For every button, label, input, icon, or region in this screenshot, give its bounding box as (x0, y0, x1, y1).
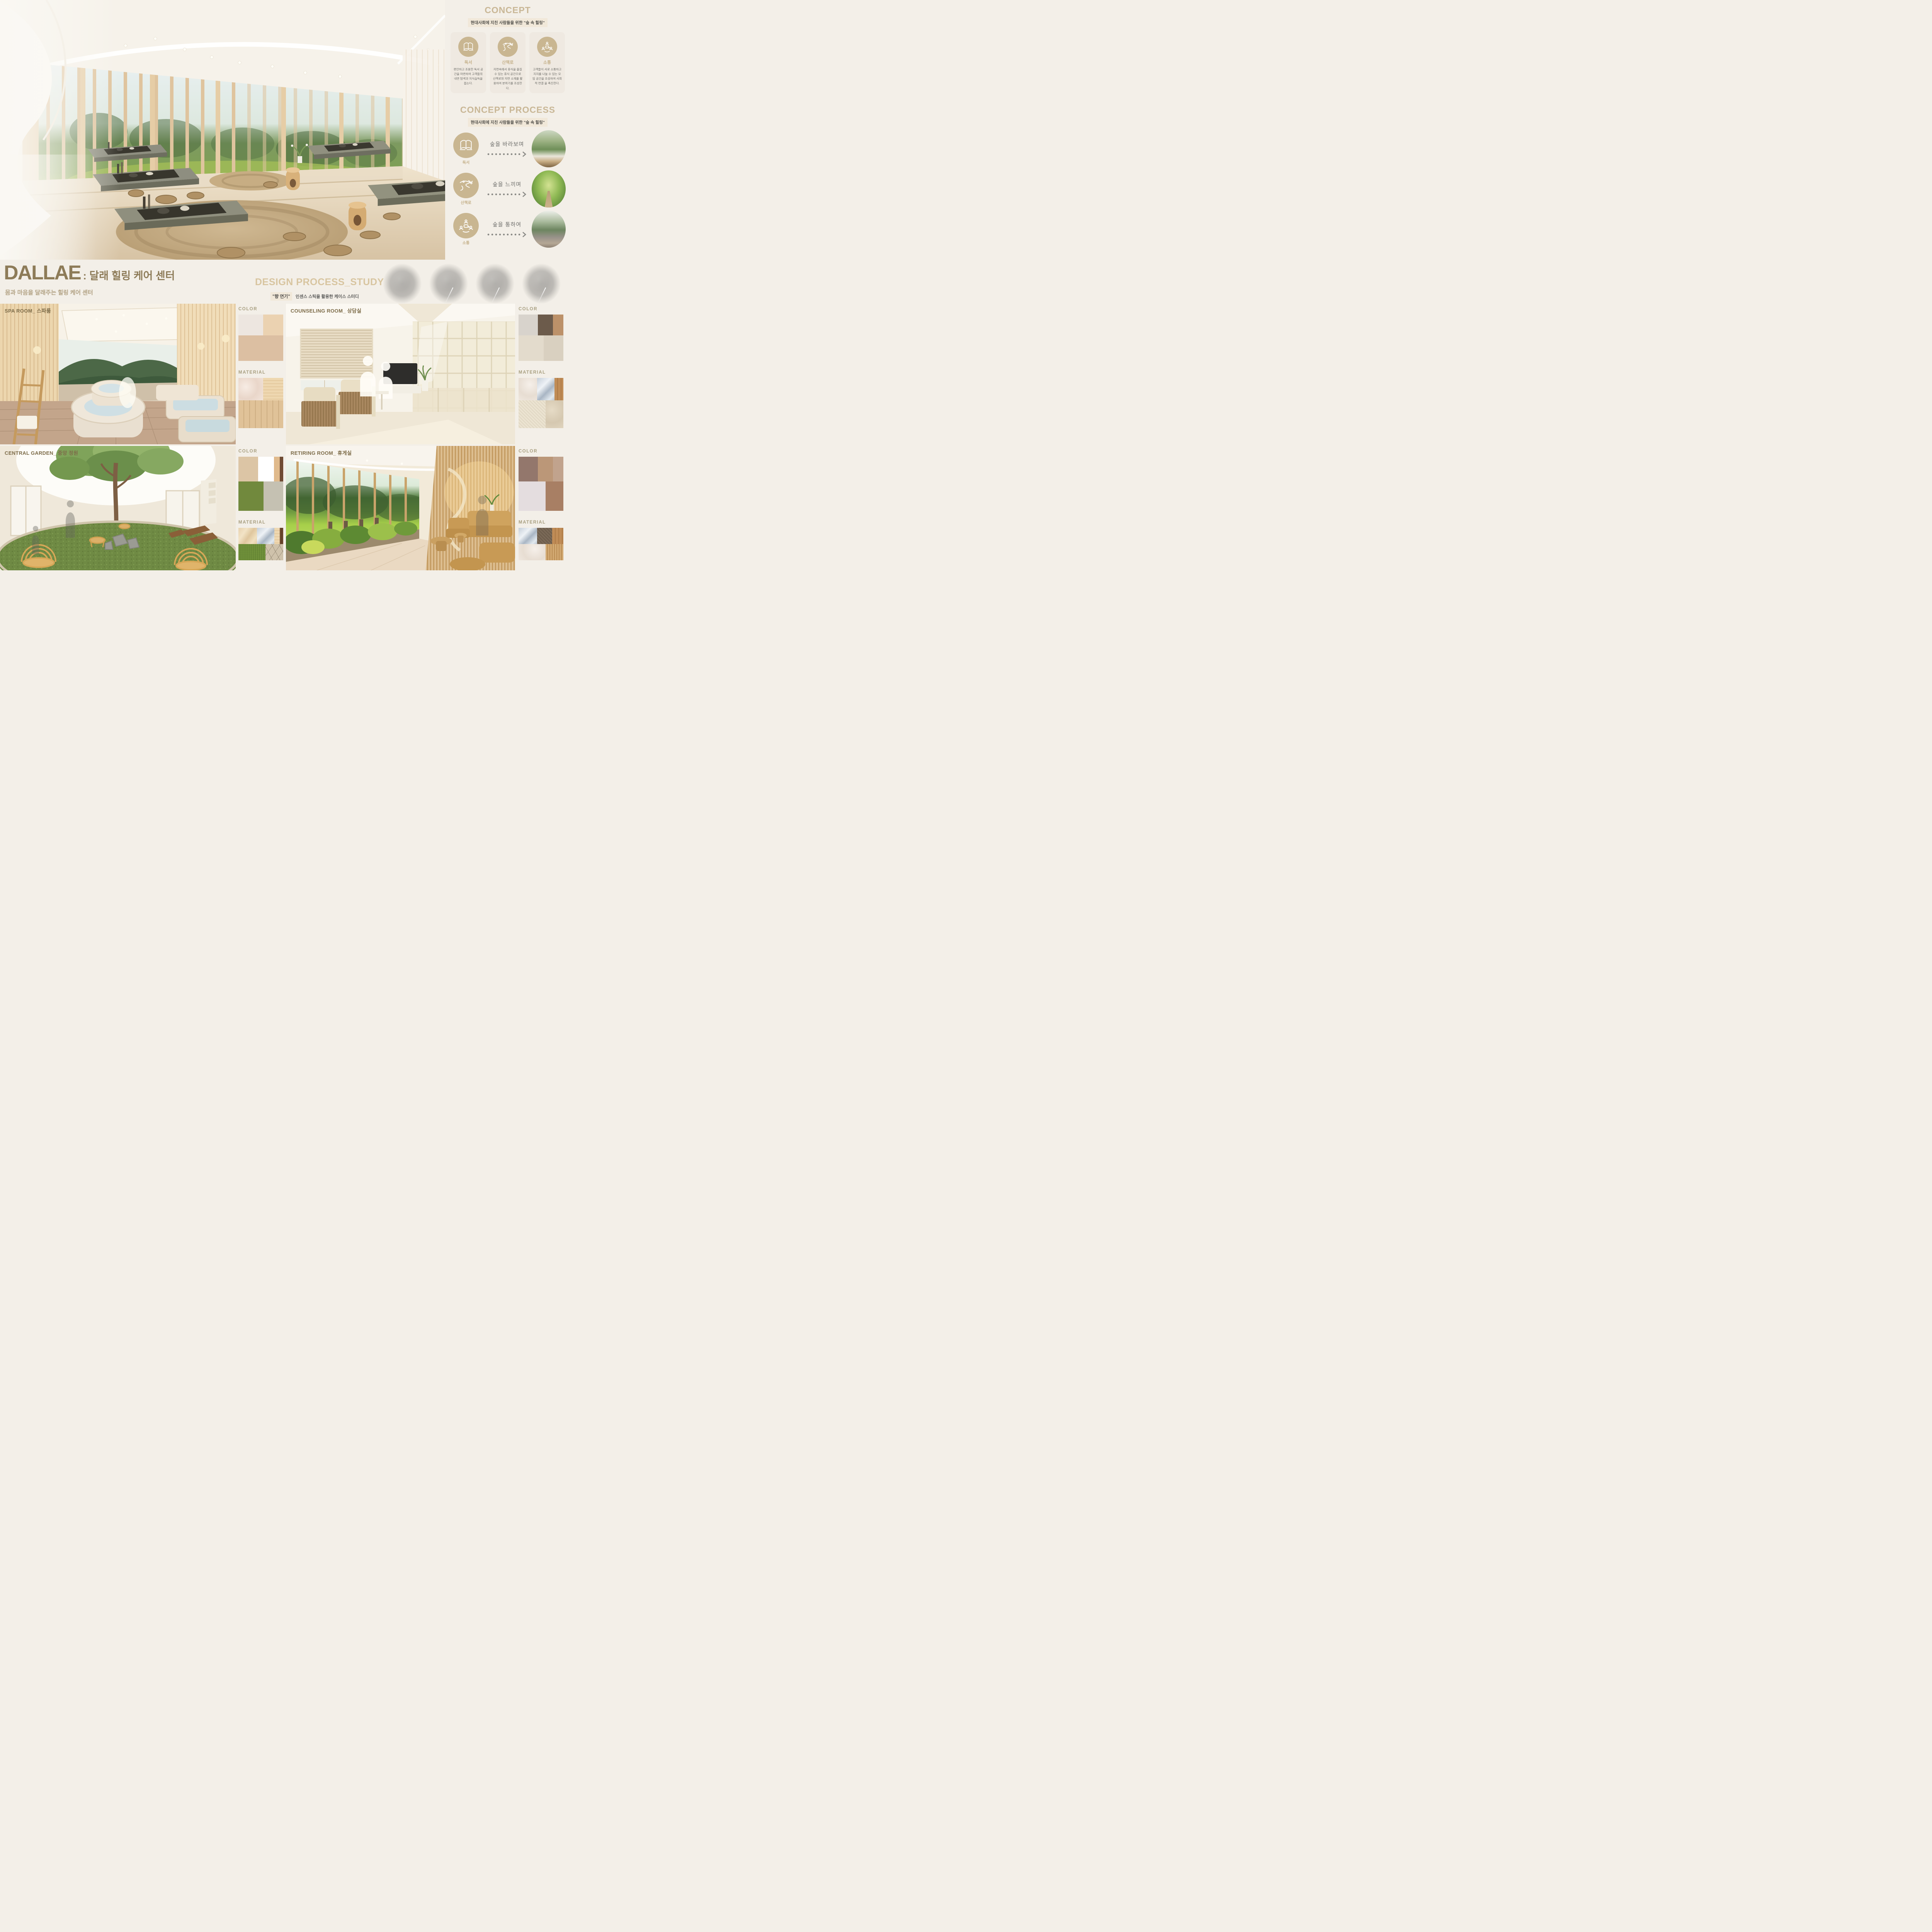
retiring-palette: COLOR MATERIAL (519, 446, 563, 560)
counseling-material-swatches (519, 378, 563, 428)
process-row-reading: 독서 숲을 바라보며 (445, 131, 570, 167)
material-heading: MATERIAL (238, 520, 283, 525)
process-text: 숲을 바라보며 (490, 140, 524, 148)
color-heading: COLOR (238, 449, 283, 454)
material-swatch-wood-maple (263, 378, 283, 400)
concept-card-label: 소통 (543, 59, 551, 65)
concept-subtitle: 현대사회에 지친 사람들을 위한 "숲 속 힐링" (468, 18, 548, 27)
communication-icon (453, 213, 479, 238)
color-swatch (544, 335, 563, 361)
color-swatch (519, 315, 538, 335)
process-photo-forest-path (532, 170, 566, 207)
retiring-material-swatches (519, 528, 563, 560)
design-process-title: DESIGN PROCESS_STUDY (255, 277, 384, 288)
main-render-tea-lounge (0, 0, 445, 260)
garden-material-swatches (238, 528, 283, 560)
garden-palette: COLOR MATERIAL (238, 446, 283, 560)
dotted-arrow-icon (487, 191, 527, 197)
process-photo-forest-window-study (532, 130, 566, 167)
concept-card-desc: 고객들이 서로 소통하고 지지를 나눌 수 있는 모임 공간을 조성하여 사회적… (529, 67, 565, 86)
dotted-arrow-icon (487, 151, 527, 157)
spa-material-swatches (238, 378, 283, 428)
central-garden-photo (0, 446, 236, 570)
spa-color-swatches (238, 315, 283, 361)
material-swatch-marble-light (519, 544, 546, 560)
counseling-color-swatches (519, 315, 563, 361)
process-text: 숲을 통하여 (493, 221, 521, 228)
project-title: DALLAE : 달래 힐링 케어 센터 (4, 261, 175, 284)
process-label: 소통 (463, 240, 469, 245)
project-subtitle: 몸과 마음을 달래주는 힐링 케어 센터 (5, 288, 93, 296)
material-swatch-wood-oak (552, 528, 563, 544)
color-heading: COLOR (519, 449, 563, 454)
title-band: DALLAE : 달래 힐링 케어 센터 몸과 마음을 달래주는 힐링 케어 센… (0, 260, 570, 304)
color-swatch (553, 315, 563, 335)
concept-card-trail: 산책로 자연속에서 휴식을 즐길수 있는 휴식 공간으로 산책로와 자연 소재를… (490, 32, 526, 93)
retiring-room-photo (286, 446, 515, 570)
material-swatch-wood-dark (280, 528, 283, 544)
material-swatch-marble-beige (238, 528, 257, 544)
material-swatch-metal (519, 528, 537, 544)
communication-icon (537, 37, 557, 57)
concept-card-label: 산책로 (502, 59, 514, 65)
color-swatch (519, 335, 544, 361)
design-process-desc: 인센스 스틱을 활용한 케이스 스터디 (296, 293, 359, 299)
color-swatch (519, 481, 546, 511)
towel (17, 416, 37, 429)
color-swatch (238, 481, 264, 511)
color-swatch (538, 457, 553, 481)
counseling-palette: COLOR MATERIAL (519, 304, 563, 428)
material-heading: MATERIAL (519, 520, 563, 525)
incense-smoke-study-photo (522, 264, 561, 304)
dotted-arrow-icon (487, 231, 527, 238)
concept-title: CONCEPT (445, 0, 570, 15)
counseling-room-photo (286, 304, 515, 444)
material-swatch-metal (257, 528, 274, 544)
concept-card-reading: 독서 편안하고 조용한 독서 공간을 마련하여 고객들의 내면 탐색과 지식습득… (451, 32, 486, 93)
material-swatch-wood-maple (274, 528, 280, 544)
color-swatch (280, 457, 283, 481)
project-title-kr: : 달래 힐링 케어 센터 (83, 267, 175, 282)
tea-lounge-photo (0, 0, 445, 260)
material-swatch-grass (238, 544, 265, 560)
process-row-trail: 산책로 숲을 느끼며 (445, 171, 570, 207)
color-swatch (238, 315, 263, 335)
material-swatch-stone-beige (546, 400, 563, 428)
color-swatch (553, 457, 563, 481)
book-icon (453, 133, 479, 158)
color-swatch (274, 457, 280, 481)
material-swatch-fabric-cream (519, 400, 546, 428)
material-swatch-wood-plank (238, 400, 283, 428)
incense-smoke-study-photo (383, 264, 422, 304)
process-photo-glass-forest-lounge (532, 211, 566, 248)
color-swatch (519, 457, 538, 481)
color-swatch (263, 315, 283, 335)
material-swatch-marble-light (519, 378, 537, 400)
color-heading: COLOR (519, 307, 563, 311)
incense-smoke-tag: "향 연기" (270, 292, 292, 301)
armchair (301, 387, 340, 429)
material-swatch-metal (537, 378, 554, 400)
incense-smoke-study-photo (476, 264, 514, 304)
book-icon (458, 37, 478, 57)
window-blinds (301, 329, 372, 378)
concept-card-desc: 편안하고 조용한 독서 공간을 마련하여 고객들의 내면 탐색과 지식습득을 돕… (451, 67, 486, 86)
concept-card-desc: 자연속에서 휴식을 즐길수 있는 휴식 공간으로 산책로와 자연 소재를 활용하… (490, 67, 526, 91)
concept-panel: CONCEPT 현대사회에 지친 사람들을 위한 "숲 속 힐링" 독서 편안하… (445, 0, 570, 260)
retiring-room-section: RETIRING ROOM_ 휴게실 (286, 446, 515, 570)
garden-color-swatches (238, 457, 283, 511)
color-swatch (264, 481, 283, 511)
process-label: 산책로 (461, 199, 471, 205)
color-swatch (258, 457, 274, 481)
spa-palette: COLOR MATERIAL (238, 304, 283, 428)
concept-section: CONCEPT 현대사회에 지친 사람들을 위한 "숲 속 힐링" 독서 편안하… (445, 0, 570, 93)
spa-room-photo (0, 304, 236, 444)
material-swatch-marble-pink (238, 378, 263, 400)
material-swatch-fabric-brown (537, 528, 552, 544)
retiring-color-swatches (519, 457, 563, 511)
color-swatch (238, 335, 283, 361)
process-row-communication: 소통 숲을 통하여 (445, 211, 570, 247)
concept-process-title: CONCEPT PROCESS (445, 105, 570, 115)
material-heading: MATERIAL (519, 370, 563, 375)
design-process-subtitle: "향 연기" 인센스 스틱을 활용한 케이스 스터디 (270, 292, 359, 301)
color-heading: COLOR (238, 307, 283, 311)
concept-process-section: CONCEPT PROCESS 현대사회에 지친 사람들을 위한 "숲 속 힐링… (445, 105, 570, 247)
material-swatch-wood-slat (546, 544, 563, 560)
material-heading: MATERIAL (238, 370, 283, 375)
concept-card-communication: 소통 고객들이 서로 소통하고 지지를 나눌 수 있는 모임 공간을 조성하여 … (529, 32, 565, 93)
room-label-retiring: RETIRING ROOM_ 휴게실 (291, 449, 352, 456)
staircase (209, 482, 216, 504)
trail-icon (498, 37, 518, 57)
project-title-en: DALLAE (4, 261, 81, 284)
room-label-counseling: COUNSELING ROOM_ 상담실 (291, 307, 361, 314)
central-garden-section: CENTRAL GARDEN_ 중앙 정원 (0, 446, 236, 570)
incense-smoke-study-photo (429, 264, 468, 304)
room-label-spa: SPA ROOM_ 스파룸 (5, 307, 51, 314)
color-swatch (538, 315, 553, 335)
process-label: 독서 (463, 159, 469, 165)
design-presentation-board: CONCEPT 현대사회에 지친 사람들을 위한 "숲 속 힐링" 독서 편안하… (0, 0, 570, 570)
material-swatch-stone-pave (265, 544, 283, 560)
color-swatch (238, 457, 258, 481)
spa-room-section: SPA ROOM_ 스파룸 (0, 304, 236, 444)
color-swatch (546, 481, 563, 511)
room-label-garden: CENTRAL GARDEN_ 중앙 정원 (5, 449, 78, 456)
concept-card-label: 독서 (464, 59, 472, 65)
trail-icon (453, 173, 479, 198)
material-swatch-wood-oak (554, 378, 563, 400)
concept-process-subtitle: 현대사회에 지친 사람들을 위한 "숲 속 힐링" (468, 118, 548, 127)
process-text: 숲을 느끼며 (493, 180, 521, 188)
counseling-room-section: COUNSELING ROOM_ 상담실 (286, 304, 515, 444)
